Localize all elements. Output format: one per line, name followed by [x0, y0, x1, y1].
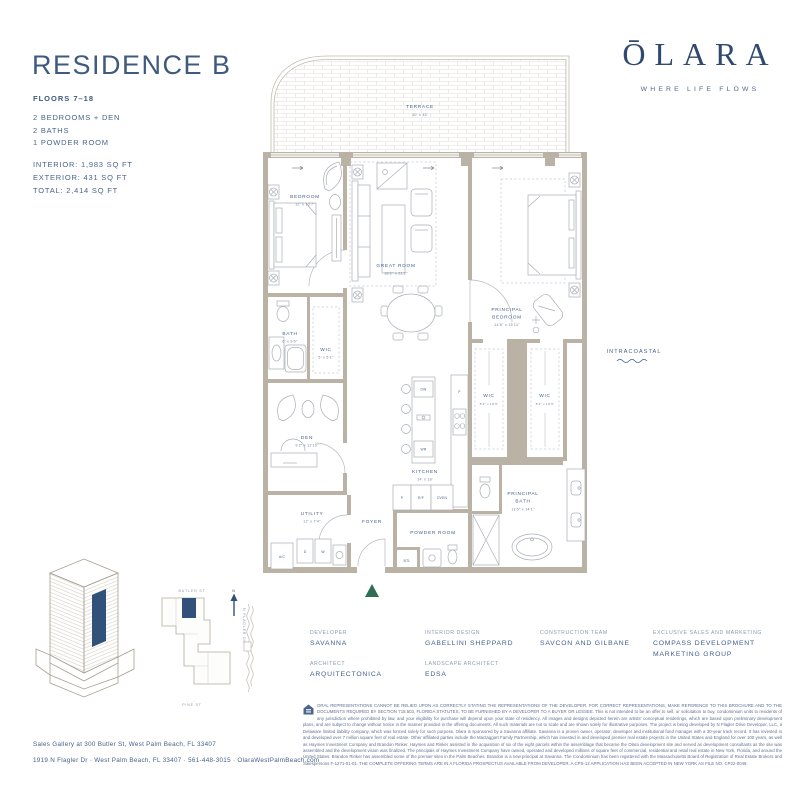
wave-icon [614, 357, 654, 365]
unit-location [182, 598, 196, 618]
brochure-page: RESIDENCE B FLOORS 7–18 2 BEDROOMS + DEN… [0, 0, 800, 800]
legal-text: ORAL REPRESENTATIONS CANNOT BE RELIED UP… [303, 703, 782, 766]
credit-label: ARCHITECT [310, 661, 418, 667]
credits-column: INTERIOR DESIGN GABELLINI SHEPPARD LANDS… [425, 630, 535, 691]
floors-label: FLOORS 7–18 [33, 94, 94, 103]
room-dims: 10' x 45' [412, 113, 428, 117]
street-top-label: BUTLER ST [179, 589, 206, 593]
room-dims: 12' x 13'7" [295, 203, 315, 207]
feature-item: 2 BEDROOMS + DEN [33, 112, 120, 125]
dining-set [381, 286, 442, 340]
credits-column: CONSTRUCTION TEAM SAVCON AND GILBANE [540, 630, 650, 661]
legal-disclaimer: ORAL REPRESENTATIONS CANNOT BE RELIED UP… [303, 703, 782, 767]
credit-value: SAVCON AND GILBANE [540, 639, 650, 650]
credit-value: GABELLINI SHEPPARD [425, 639, 535, 650]
room-label: UTILITY [301, 511, 324, 517]
window-band [271, 153, 581, 166]
ac-label: A/C [279, 555, 286, 559]
keyplan: BUTLER ST PINE ST N N FLAGLER DR [146, 580, 254, 712]
credit-label: DEVELOPER [310, 630, 418, 636]
room-label: FOYER [362, 519, 382, 525]
area-exterior: EXTERIOR: 431 SQ FT [33, 171, 133, 184]
footer-contact: 1919 N Flagler Dr · West Palm Beach, FL … [33, 757, 319, 764]
svg-text:WIC: WIC [483, 393, 494, 399]
svg-text:PRINCIPAL: PRINCIPAL [507, 491, 538, 497]
area-interior: INTERIOR: 1,983 SQ FT [33, 158, 133, 171]
btl-label: BTL [404, 559, 411, 563]
brand-logo: ŌLARA [612, 36, 788, 73]
principal-bath-fixtures: PRINCIPAL BATH 11'5" x 14'1" [473, 469, 585, 565]
oven-label: OVEN [437, 496, 448, 500]
room-label: KITCHEN [412, 469, 438, 475]
svg-text:WIC: WIC [320, 347, 331, 353]
wic-left: WIC 5'3" x 10'3" [475, 349, 503, 449]
svg-text:11'5" x 14'1": 11'5" x 14'1" [511, 508, 535, 512]
feature-list: 2 BEDROOMS + DEN 2 BATHS 1 POWDER ROOM [33, 112, 120, 150]
street-bottom-label: PINE ST [182, 703, 202, 707]
page-title: RESIDENCE B [32, 50, 232, 81]
room-dims: 12' x 7'4" [303, 520, 321, 524]
room-dims: 14' x 18' [417, 478, 433, 482]
kitchen-fixtures: DW WR P P R/F OVEN [393, 375, 468, 510]
credit-value: ARQUITECTONICA [310, 670, 418, 681]
dishwasher-label: DW [421, 388, 428, 392]
room-label: PRINCIPAL [491, 307, 522, 313]
credit-label: LANDSCAPE ARCHITECT [425, 661, 535, 667]
utility-fixtures: A/C D W [271, 539, 346, 569]
entry-marker [365, 584, 379, 597]
wic-right: WIC 5'3" x 10'3" [531, 349, 559, 449]
bedroom-furniture [268, 162, 341, 285]
room-dims: 6' x 9'6" [282, 340, 298, 344]
credit-label: EXCLUSIVE SALES AND MARKETING [653, 630, 783, 636]
north-arrow [231, 594, 238, 617]
north-label: N [232, 589, 235, 593]
credits-column: EXCLUSIVE SALES AND MARKETING COMPASS DE… [653, 630, 783, 671]
credit-value: EDSA [425, 670, 535, 681]
intracoastal-annotation: INTRACOASTAL [596, 349, 672, 365]
fridge-label: R/F [418, 496, 424, 500]
room-label: TERRACE [406, 104, 434, 110]
floor-plan: TERRACE 10' x 45' [255, 45, 595, 600]
den-furniture [271, 395, 338, 467]
wine-fridge-label: WR [421, 448, 427, 452]
room-label: POWDER ROOM [410, 530, 456, 536]
brand-tagline: WHERE LIFE FLOWS [612, 86, 788, 93]
credits-column: DEVELOPER SAVANNA ARCHITECT ARQUITECTONI… [310, 630, 418, 691]
svg-text:5' x 5'1": 5' x 5'1" [318, 356, 334, 360]
area-list: INTERIOR: 1,983 SQ FT EXTERIOR: 431 SQ F… [33, 158, 133, 197]
room-label: BEDROOM [290, 194, 320, 200]
building-illustration [26, 553, 146, 703]
room-dims: 18'2" x 21'2" [384, 272, 408, 276]
svg-text:5'3" x 10'3": 5'3" x 10'3" [536, 402, 555, 406]
room-dims: 14'8" x 15'11" [494, 323, 520, 327]
footer-sales-gallery: Sales Gallery at 300 Butler St, West Pal… [33, 741, 216, 748]
terrace: TERRACE 10' x 45' [271, 56, 569, 155]
intracoastal-label: INTRACOASTAL [596, 349, 672, 355]
svg-text:5'3" x 10'3": 5'3" x 10'3" [480, 402, 499, 406]
credit-value: COMPASS DEVELOPMENT MARKETING GROUP [653, 639, 783, 660]
room-label: GREAT ROOM [376, 263, 415, 269]
credit-label: INTERIOR DESIGN [425, 630, 535, 636]
credit-label: CONSTRUCTION TEAM [540, 630, 650, 636]
room-label: DEN [301, 435, 313, 441]
feature-item: 1 POWDER ROOM [33, 137, 120, 150]
svg-text:WIC: WIC [539, 393, 550, 399]
great-room-furniture [350, 162, 436, 302]
room-label: BEDROOM [492, 315, 522, 321]
credit-value: SAVANNA [310, 639, 418, 650]
street-right-label: N FLAGLER DR [242, 608, 246, 644]
svg-text:BATH: BATH [515, 499, 530, 505]
dryer-label: D [304, 550, 307, 554]
feature-item: 2 BATHS [33, 125, 120, 138]
area-total: TOTAL: 2,414 SQ FT [33, 184, 133, 197]
room-dims: 9'2" x 11'10" [295, 444, 319, 448]
highlight-stack [92, 589, 106, 647]
wic-small: WIC 5' x 5'1" [313, 307, 339, 373]
equal-housing-icon [303, 704, 314, 715]
room-label: BATH [282, 331, 297, 337]
